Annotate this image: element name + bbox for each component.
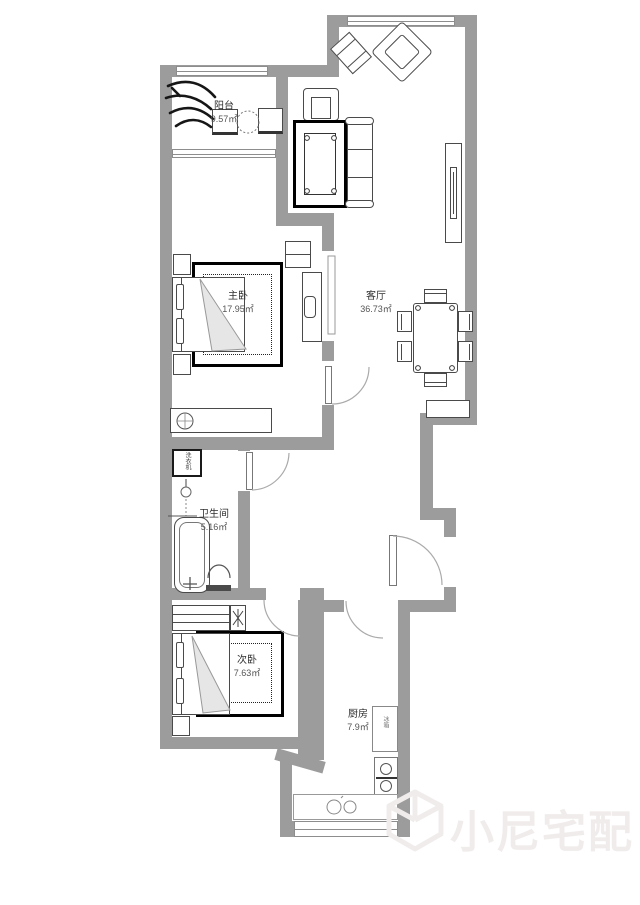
sofa-armrest-top: [345, 117, 374, 125]
plant-icon: [166, 82, 215, 127]
armchair-diagonal: [371, 21, 433, 83]
tv-screen: [450, 167, 457, 219]
floor-plan: 洗衣机 冰箱 阳台 9.57㎡ 主卧 17.95㎡ 客厅 36.73㎡ 卫生间 …: [0, 0, 640, 905]
dining-table: [413, 303, 458, 373]
dining-chair-top: [424, 289, 447, 303]
bathroom-label: 卫生间 5.16㎡: [199, 509, 229, 533]
wardrobe-masterbedroom: [285, 241, 311, 268]
bed2-label: 次卧 7.63㎡: [234, 655, 261, 679]
wall-livingroom-right: [465, 15, 477, 425]
stove: [374, 757, 398, 795]
toilet-icon: [208, 565, 230, 578]
window-kitchen-bottom: [294, 821, 398, 837]
wall-kitchen-top-left: [322, 600, 346, 612]
sofa-three-seat: [347, 121, 373, 205]
bathroom-door-leaf: [246, 452, 253, 490]
nightstand-2: [172, 716, 190, 736]
bathroom-door-arc: [252, 453, 289, 490]
bed2-side-table: [230, 605, 246, 631]
kitchen-counter: [293, 794, 398, 820]
wall-bed2-bottom: [160, 737, 310, 749]
wall-kitchen-bottom-stub: [280, 821, 294, 837]
armchair-top: [303, 88, 339, 121]
wall-balcony-right: [276, 65, 288, 213]
livingroom-label: 客厅 36.73㎡: [360, 291, 392, 315]
balcony-chair-right: [258, 108, 283, 134]
wall-hall-right-upper: [420, 413, 433, 520]
masterbedroom-door-arc: [332, 367, 369, 404]
wall-left-outer: [160, 65, 172, 749]
watermark-brand: 小尼宅配: [450, 796, 634, 860]
balcony-label: 阳台 9.57㎡: [211, 101, 238, 125]
masterbedroom-label: 主卧 17.95㎡: [222, 291, 254, 315]
masterbedroom-door-leaf: [325, 366, 332, 404]
entry-door-leaf: [389, 535, 397, 586]
fridge: [372, 706, 398, 752]
wardrobe-bed2: [172, 605, 230, 631]
dining-chair-left-1: [397, 311, 412, 332]
opening-masterbedroom-panel: [322, 251, 334, 341]
dining-chair-left-2: [397, 341, 412, 362]
opening-bed2-door: [266, 588, 300, 600]
opening-kitchen-door: [344, 600, 382, 612]
window-balcony-top: [176, 66, 268, 76]
washing-machine-label: 洗衣机: [184, 452, 190, 470]
bed2: [172, 633, 230, 715]
vanity-table: [170, 408, 272, 433]
sofa-armrest-bottom: [345, 200, 374, 208]
nightstand-1b: [173, 354, 191, 375]
desk-chair: [304, 296, 316, 318]
sideboard: [426, 400, 470, 418]
balcony-table-icon: [237, 111, 259, 133]
entry-door-arc: [393, 536, 442, 585]
wall-bed2-kitchen-shared: [298, 588, 324, 760]
opening-entry-door: [444, 537, 456, 587]
window-balcony-sill: [172, 149, 276, 158]
dining-chair-bottom: [424, 373, 447, 387]
dining-chair-right-1: [458, 311, 473, 332]
dining-chair-right-2: [458, 341, 473, 362]
wall-kitchen-right: [398, 600, 410, 837]
shower-icon: [181, 487, 191, 497]
nightstand-1a: [173, 254, 191, 275]
livingroom-rug: [293, 120, 347, 208]
kitchen-label: 厨房 7.9㎡: [347, 709, 369, 733]
fridge-label: 冰箱: [382, 716, 388, 728]
